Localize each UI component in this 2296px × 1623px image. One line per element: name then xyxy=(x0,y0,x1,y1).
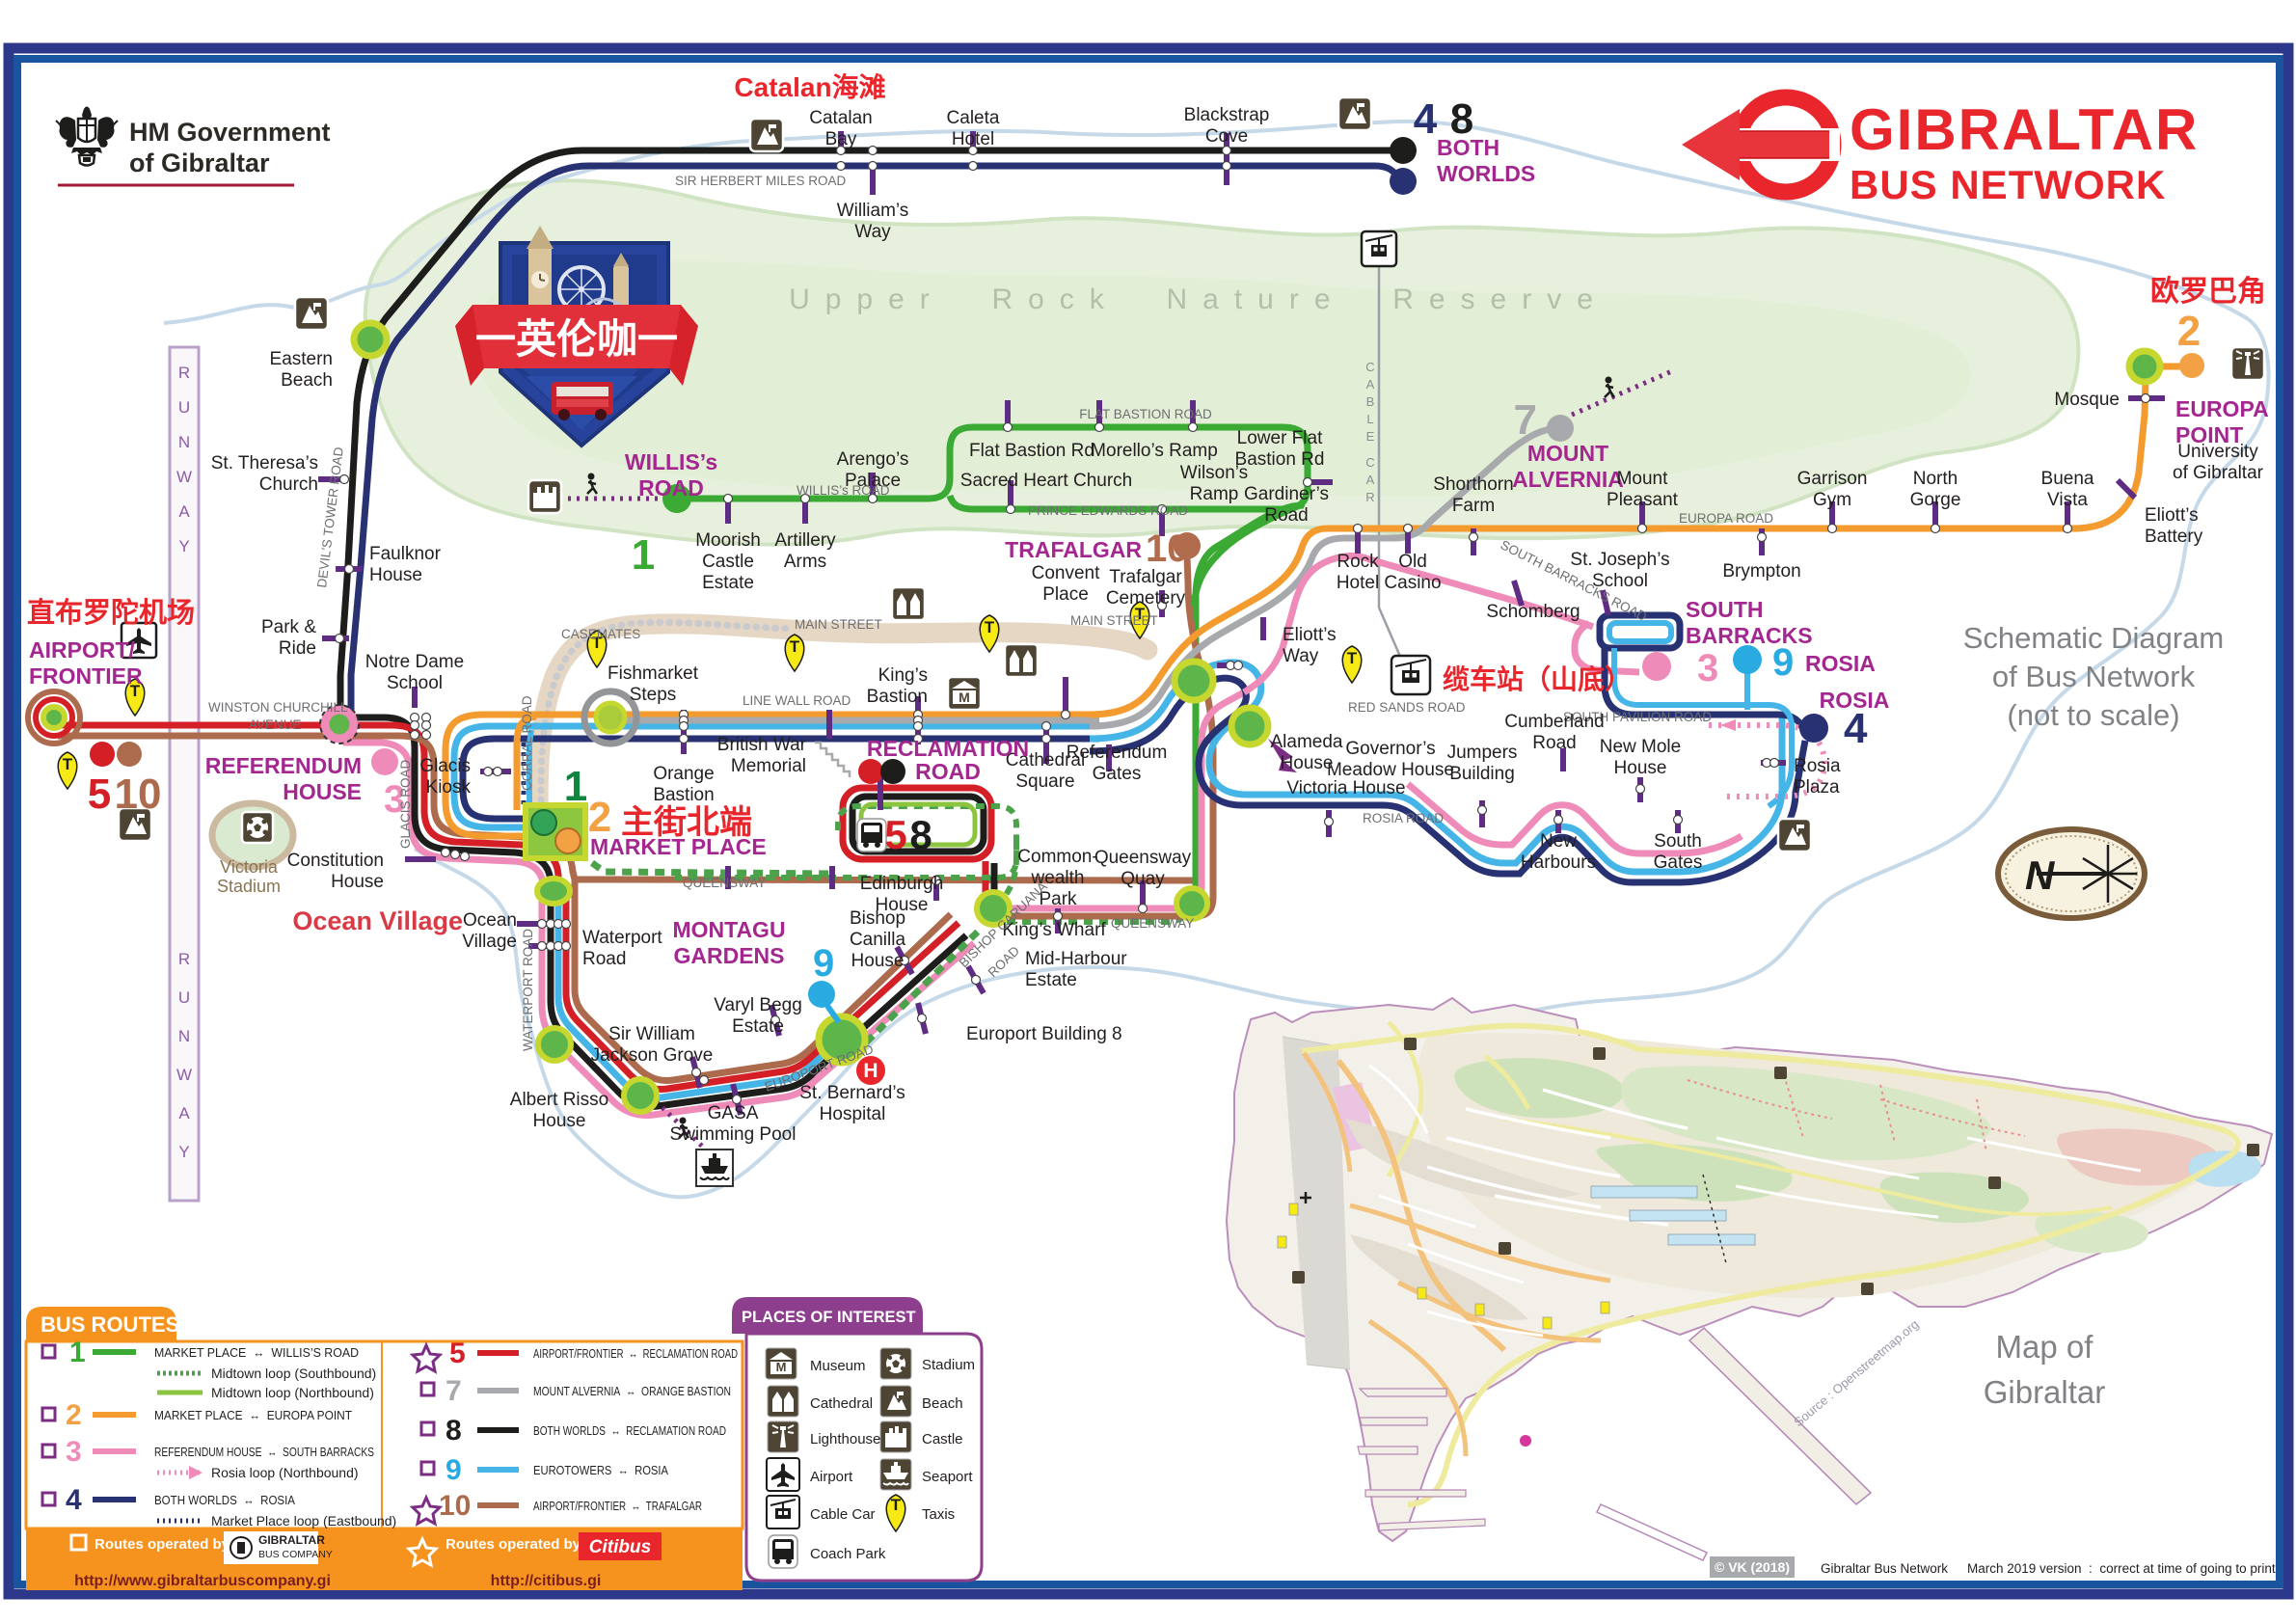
svg-text:Edinburgh: Edinburgh xyxy=(860,874,944,894)
svg-text:L: L xyxy=(1366,412,1373,426)
svg-text:Farm: Farm xyxy=(1452,496,1495,516)
svg-text:Gardiner’s: Gardiner’s xyxy=(1244,484,1329,504)
svg-text:MARKET PLACE: MARKET PLACE xyxy=(590,834,767,859)
svg-text:Shorthorn: Shorthorn xyxy=(1433,474,1513,495)
svg-text:Way: Way xyxy=(854,222,891,242)
svg-text:Routes operated by: Routes operated by xyxy=(446,1536,581,1553)
svg-text:T: T xyxy=(1347,649,1358,667)
svg-text:Square: Square xyxy=(1015,771,1074,792)
svg-text:Mosque: Mosque xyxy=(2054,390,2120,410)
svg-text:3: 3 xyxy=(66,1436,82,1468)
svg-text:Routes operated by: Routes operated by xyxy=(95,1536,230,1553)
svg-text:AIRPORT/FRONTIER ↔ TRAFALGAR: AIRPORT/FRONTIER ↔ TRAFALGAR xyxy=(533,1500,702,1513)
svg-text:University: University xyxy=(2177,442,2258,462)
svg-text:St. Bernard’s: St. Bernard’s xyxy=(799,1083,905,1103)
svg-text:Ocean: Ocean xyxy=(463,910,517,931)
svg-text:Ramp: Ramp xyxy=(1190,484,1239,504)
svg-text:Morello’s Ramp: Morello’s Ramp xyxy=(1091,441,1218,461)
svg-text:HM Government: HM Government xyxy=(129,118,331,147)
svg-text:British War: British War xyxy=(717,735,807,755)
svg-text:Waterport: Waterport xyxy=(582,928,662,948)
svg-text:Ocean Village: Ocean Village xyxy=(292,906,463,935)
svg-text:http://citibus.gi: http://citibus.gi xyxy=(491,1573,602,1589)
svg-text:Catalan: Catalan xyxy=(809,108,873,128)
svg-text:Cove: Cove xyxy=(1205,126,1248,147)
svg-text:T: T xyxy=(63,755,73,773)
svg-text:EUROPA: EUROPA xyxy=(2175,396,2269,421)
svg-text:Memorial: Memorial xyxy=(731,756,806,776)
svg-text:Kiosk: Kiosk xyxy=(426,777,472,798)
svg-text:GLACIS ROAD: GLACIS ROAD xyxy=(398,759,413,849)
svg-text:Buena: Buena xyxy=(2041,469,2094,489)
svg-text:C: C xyxy=(1365,455,1374,470)
svg-text:N: N xyxy=(178,433,190,451)
svg-text:Beach: Beach xyxy=(281,370,333,391)
svg-text:5: 5 xyxy=(449,1338,466,1369)
svg-text:Battery: Battery xyxy=(2145,527,2203,547)
svg-text:R: R xyxy=(178,950,190,968)
svg-text:Stadium: Stadium xyxy=(922,1357,975,1373)
svg-text:St. Theresa’s: St. Theresa’s xyxy=(211,453,318,473)
svg-text:CORRAL ROAD: CORRAL ROAD xyxy=(520,695,534,791)
svg-text:Flat Bastion Rd: Flat Bastion Rd xyxy=(969,441,1094,461)
svg-text:BOTH WORLDS ↔ ROSIA: BOTH WORLDS ↔ ROSIA xyxy=(154,1494,296,1507)
svg-text:Notre Dame: Notre Dame xyxy=(365,652,464,672)
svg-text:T: T xyxy=(891,1496,902,1514)
svg-text:Eastern: Eastern xyxy=(270,349,333,369)
svg-text:Sacred Heart Church: Sacred Heart Church xyxy=(960,471,1132,491)
svg-text:Gibraltar Bus Network: Gibraltar Bus Network xyxy=(1821,1561,1948,1576)
svg-text:House: House xyxy=(331,872,384,892)
svg-text:Estate: Estate xyxy=(702,573,754,593)
svg-text:School: School xyxy=(387,673,443,693)
svg-text:Museum: Museum xyxy=(810,1358,866,1374)
svg-text:Road: Road xyxy=(1532,733,1576,753)
svg-text:Cumberland: Cumberland xyxy=(1504,712,1605,732)
svg-text:Upper Rock Nature Reserve: Upper Rock Nature Reserve xyxy=(789,284,1608,315)
svg-text:Y: Y xyxy=(178,1143,189,1161)
svg-text:BUS ROUTES: BUS ROUTES xyxy=(41,1312,179,1337)
svg-text:Plaza: Plaza xyxy=(1794,777,1840,798)
svg-text:W: W xyxy=(176,468,192,486)
svg-text:Schomberg: Schomberg xyxy=(1486,602,1580,622)
svg-text:Y: Y xyxy=(178,537,189,555)
svg-text:Queensway: Queensway xyxy=(1094,848,1192,868)
svg-text:10: 10 xyxy=(1146,527,1189,570)
svg-text:AIRPORT/FRONTIER ↔ RECLAMATI: AIRPORT/FRONTIER ↔ RECLAMATION ROAD xyxy=(533,1347,738,1361)
svg-text:直布罗陀机场: 直布罗陀机场 xyxy=(27,597,195,629)
svg-text:SIR HERBERT MILES ROAD: SIR HERBERT MILES ROAD xyxy=(675,174,847,188)
svg-text:Estate: Estate xyxy=(1025,970,1077,990)
svg-text:Park &: Park & xyxy=(261,617,316,637)
svg-text:GIBRALTAR: GIBRALTAR xyxy=(1850,97,2199,162)
svg-text:Catalan海滩: Catalan海滩 xyxy=(734,71,885,102)
svg-text:5: 5 xyxy=(884,812,906,857)
svg-text:Victoria House: Victoria House xyxy=(1286,778,1405,798)
svg-text:B: B xyxy=(1366,394,1375,409)
svg-text:Blackstrap: Blackstrap xyxy=(1184,105,1270,125)
svg-text:Vista: Vista xyxy=(2047,490,2088,510)
svg-text:Old: Old xyxy=(1398,552,1427,572)
svg-text:N: N xyxy=(2025,852,2056,898)
svg-text:Hotel: Hotel xyxy=(952,129,994,149)
svg-text:Common-: Common- xyxy=(1017,847,1097,867)
svg-text:Albert Risso: Albert Risso xyxy=(510,1090,608,1110)
svg-text:March 2019 version : correct: March 2019 version : correct at time of … xyxy=(1967,1561,2276,1576)
svg-text:GARDENS: GARDENS xyxy=(673,943,784,968)
svg-text:PLACES OF INTEREST: PLACES OF INTEREST xyxy=(742,1309,916,1326)
svg-text:R: R xyxy=(1365,490,1374,504)
svg-text:9: 9 xyxy=(446,1454,462,1486)
svg-text:Gym: Gym xyxy=(1813,490,1851,510)
svg-text:Building: Building xyxy=(1449,764,1515,784)
svg-text:Alameda: Alameda xyxy=(1271,732,1343,752)
svg-text:Pleasant: Pleasant xyxy=(1607,490,1679,510)
svg-text:EUROTOWERS ↔ ROSIA: EUROTOWERS ↔ ROSIA xyxy=(533,1464,669,1477)
svg-text:QUEENSWAY: QUEENSWAY xyxy=(1111,916,1194,931)
svg-text:MAIN STREET: MAIN STREET xyxy=(1070,613,1158,628)
svg-text:CASEMATES: CASEMATES xyxy=(561,627,640,641)
svg-text:H: H xyxy=(863,1060,878,1082)
svg-text:4: 4 xyxy=(66,1484,82,1516)
svg-text:Governor’s: Governor’s xyxy=(1345,739,1435,759)
svg-text:Bishop: Bishop xyxy=(850,908,905,929)
svg-text:ROSIA ROAD: ROSIA ROAD xyxy=(1363,811,1444,825)
svg-text:Eliott’s: Eliott’s xyxy=(1283,625,1337,645)
svg-text:BOTH WORLDS ↔ RECLAMATION RO: BOTH WORLDS ↔ RECLAMATION ROAD xyxy=(533,1424,726,1438)
svg-text:Rock: Rock xyxy=(1337,552,1379,572)
svg-text:M: M xyxy=(776,1360,787,1374)
svg-text:A: A xyxy=(178,502,190,521)
svg-text:BUS NETWORK: BUS NETWORK xyxy=(1850,162,2166,207)
svg-text:William’s: William’s xyxy=(837,201,909,221)
svg-text:Ride: Ride xyxy=(279,638,316,659)
svg-text:Casino: Casino xyxy=(1384,573,1441,593)
svg-text:T: T xyxy=(985,618,995,636)
svg-text:New Mole: New Mole xyxy=(1600,737,1681,757)
svg-text:(not to scale): (not to scale) xyxy=(2007,698,2179,732)
svg-text:School: School xyxy=(1592,571,1648,591)
svg-text:Harbours: Harbours xyxy=(1521,852,1596,873)
svg-text:Castle: Castle xyxy=(922,1431,963,1447)
svg-text:Faulknor: Faulknor xyxy=(369,544,442,564)
svg-text:AVENUE: AVENUE xyxy=(249,717,302,732)
svg-text:Gates: Gates xyxy=(1654,852,1703,873)
svg-text:U: U xyxy=(178,398,190,417)
svg-text:Lighthouse: Lighthouse xyxy=(810,1431,880,1447)
svg-text:Coach Park: Coach Park xyxy=(810,1546,886,1562)
svg-text:WATERPORT ROAD: WATERPORT ROAD xyxy=(521,929,535,1051)
svg-text:King’s: King’s xyxy=(878,665,928,686)
svg-text:9: 9 xyxy=(1772,641,1794,684)
svg-text:1: 1 xyxy=(632,531,655,579)
svg-text:Gorge: Gorge xyxy=(1910,490,1961,510)
svg-text:Hospital: Hospital xyxy=(820,1104,886,1124)
svg-text:of Bus Network: of Bus Network xyxy=(1992,660,2196,693)
svg-text:Lower Flat: Lower Flat xyxy=(1237,428,1323,448)
svg-text:Airport: Airport xyxy=(810,1469,853,1485)
svg-text:MOUNT: MOUNT xyxy=(1527,441,1608,466)
svg-text:Bay: Bay xyxy=(825,129,857,149)
svg-text:9: 9 xyxy=(813,942,834,985)
svg-text:RED SANDS ROAD: RED SANDS ROAD xyxy=(1348,700,1466,715)
svg-text:Beach: Beach xyxy=(922,1395,963,1412)
svg-text:EUROPA ROAD: EUROPA ROAD xyxy=(1679,511,1773,526)
svg-text:Midtown loop (Southbound): Midtown loop (Southbound) xyxy=(211,1366,376,1381)
svg-text:Arengo’s: Arengo’s xyxy=(837,449,909,470)
svg-text:Cemetery: Cemetery xyxy=(1106,588,1186,609)
svg-text:Cable Car: Cable Car xyxy=(810,1506,876,1523)
svg-text:W: W xyxy=(176,1066,192,1084)
svg-text:of Gibraltar: of Gibraltar xyxy=(2173,463,2264,483)
svg-text:7: 7 xyxy=(446,1375,462,1407)
svg-text:Rosia loop (Northbound): Rosia loop (Northbound) xyxy=(211,1465,359,1480)
svg-text:Europort Building 8: Europort Building 8 xyxy=(966,1024,1122,1044)
svg-text:1: 1 xyxy=(69,1337,86,1368)
svg-text:House: House xyxy=(851,951,905,971)
svg-text:缆车站（山底）: 缆车站（山底） xyxy=(1443,663,1632,694)
svg-text:St. Joseph’s: St. Joseph’s xyxy=(1570,550,1669,570)
svg-text:Garrison: Garrison xyxy=(1797,469,1868,489)
svg-text:House: House xyxy=(1614,758,1667,778)
svg-text:WINSTON CHURCHILL: WINSTON CHURCHILL xyxy=(208,700,348,715)
svg-text:Midtown loop (Northbound): Midtown loop (Northbound) xyxy=(211,1385,374,1400)
svg-text:REFERENDUM: REFERENDUM xyxy=(205,753,362,778)
svg-text:SOUTH: SOUTH xyxy=(1686,597,1764,622)
svg-text:Arms: Arms xyxy=(784,552,826,572)
svg-text:GIBRALTAR: GIBRALTAR xyxy=(258,1533,325,1547)
svg-text:一英伦咖一: 一英伦咖一 xyxy=(475,316,678,362)
svg-text:WORLDS: WORLDS xyxy=(1437,161,1535,186)
svg-text:Seaport: Seaport xyxy=(922,1469,973,1485)
svg-text:Place: Place xyxy=(1042,584,1089,605)
svg-text:4: 4 xyxy=(1414,95,1438,143)
svg-text:WILLIS’s ROAD: WILLIS’s ROAD xyxy=(797,483,890,498)
svg-text:A: A xyxy=(1366,377,1375,392)
svg-text:Glacis: Glacis xyxy=(419,756,471,776)
svg-text:Swimming Pool: Swimming Pool xyxy=(670,1124,797,1145)
svg-text:Gibraltar: Gibraltar xyxy=(1984,1374,2106,1410)
svg-text:MOUNT ALVERNIA ↔ ORANGE BAST: MOUNT ALVERNIA ↔ ORANGE BASTION xyxy=(533,1385,731,1398)
svg-text:New: New xyxy=(1540,831,1577,852)
svg-text:Mid-Harbour: Mid-Harbour xyxy=(1025,949,1127,969)
svg-text:RECLAMATION: RECLAMATION xyxy=(867,736,1029,761)
svg-text:MARKET PLACE ↔ WILLIS’S ROAD: MARKET PLACE ↔ WILLIS’S ROAD xyxy=(154,1346,359,1360)
svg-text:Road: Road xyxy=(1264,505,1308,526)
svg-text:Village: Village xyxy=(462,932,517,952)
svg-text:North: North xyxy=(1913,469,1958,489)
svg-text:BOTH: BOTH xyxy=(1437,135,1499,160)
svg-text:Sir William: Sir William xyxy=(608,1024,695,1044)
svg-text:欧罗巴角: 欧罗巴角 xyxy=(2150,276,2266,308)
svg-text:Referendum: Referendum xyxy=(1067,743,1168,763)
svg-text:HOUSE: HOUSE xyxy=(283,779,362,804)
svg-text:LINE WALL ROAD: LINE WALL ROAD xyxy=(743,693,851,708)
svg-text:FLAT BASTION ROAD: FLAT BASTION ROAD xyxy=(1079,407,1212,421)
svg-text:QUEENSWAY: QUEENSWAY xyxy=(683,876,766,890)
svg-text:N: N xyxy=(178,1027,190,1045)
svg-text:Meadow House: Meadow House xyxy=(1327,760,1454,780)
svg-text:Artillery: Artillery xyxy=(774,530,836,551)
svg-text:TRAFALGAR: TRAFALGAR xyxy=(1005,537,1142,562)
svg-text:House: House xyxy=(369,565,422,585)
svg-text:ROAD: ROAD xyxy=(638,475,704,500)
svg-text:5: 5 xyxy=(88,771,111,818)
svg-text:8: 8 xyxy=(446,1415,462,1447)
svg-text:South: South xyxy=(1654,831,1702,852)
svg-text:Varyl Begg: Varyl Begg xyxy=(714,995,802,1015)
svg-text:Bastion Rd: Bastion Rd xyxy=(1235,449,1325,470)
svg-text:Stadium: Stadium xyxy=(217,877,281,896)
svg-text:2: 2 xyxy=(2177,308,2201,355)
svg-text:of Gibraltar: of Gibraltar xyxy=(129,149,270,177)
svg-text:Road: Road xyxy=(582,949,626,969)
svg-text:MAIN STREET: MAIN STREET xyxy=(795,617,882,632)
svg-text:Market Place loop (Eastbound): Market Place loop (Eastbound) xyxy=(211,1513,396,1528)
svg-text:GASA: GASA xyxy=(708,1103,759,1123)
svg-text:8: 8 xyxy=(909,812,932,857)
svg-text:10: 10 xyxy=(439,1490,471,1522)
svg-text:A: A xyxy=(1366,473,1375,487)
svg-text:Canilla: Canilla xyxy=(850,930,906,950)
svg-text:Bastion: Bastion xyxy=(867,687,928,707)
svg-text:Trafalgar: Trafalgar xyxy=(1109,567,1182,587)
svg-text:1: 1 xyxy=(564,763,587,810)
svg-text:Eliott’s: Eliott’s xyxy=(2145,505,2199,526)
svg-text:Moorish: Moorish xyxy=(695,530,761,551)
svg-text:MONTAGU: MONTAGU xyxy=(672,917,785,942)
svg-text:MARKET PLACE ↔ EUROPA POINT: MARKET PLACE ↔ EUROPA POINT xyxy=(154,1409,352,1422)
svg-text:Hotel: Hotel xyxy=(1337,573,1379,593)
svg-text:King’s Wharf: King’s Wharf xyxy=(1002,920,1106,940)
svg-text:Mount: Mount xyxy=(1617,469,1669,489)
svg-text:Rosia: Rosia xyxy=(1794,756,1841,776)
svg-text:Jumpers: Jumpers xyxy=(1447,743,1518,763)
svg-text:4: 4 xyxy=(1844,705,1868,752)
svg-text:Victoria: Victoria xyxy=(220,857,279,877)
svg-text:Wilson’s: Wilson’s xyxy=(1180,463,1248,483)
svg-text:Map of: Map of xyxy=(1996,1329,2094,1365)
svg-text:BUS COMPANY: BUS COMPANY xyxy=(258,1549,333,1560)
svg-text:R: R xyxy=(178,364,190,382)
svg-text:PRINCE EDWARDS ROAD: PRINCE EDWARDS ROAD xyxy=(1028,503,1188,518)
svg-text:ALVERNIA: ALVERNIA xyxy=(1512,467,1624,492)
svg-text:Constitution: Constitution xyxy=(287,851,384,871)
svg-text:Church: Church xyxy=(259,474,318,495)
svg-text:E: E xyxy=(1366,429,1375,444)
svg-text:M: M xyxy=(959,690,970,705)
svg-text:Schematic Diagram: Schematic Diagram xyxy=(1963,621,2224,655)
svg-text:WILLIS’s: WILLIS’s xyxy=(625,449,717,474)
svg-text:C: C xyxy=(1365,360,1374,374)
svg-text:Convent: Convent xyxy=(1032,563,1100,583)
svg-text:U: U xyxy=(178,988,190,1007)
svg-text:Citibus: Citibus xyxy=(589,1537,651,1557)
svg-text:AIRPORT/: AIRPORT/ xyxy=(29,637,136,663)
svg-text:Steps: Steps xyxy=(630,685,677,705)
svg-text:© VK (2018): © VK (2018) xyxy=(1715,1559,1790,1575)
svg-text:10: 10 xyxy=(115,771,162,818)
svg-text:Cathedral: Cathedral xyxy=(810,1395,873,1412)
svg-text:FRONTIER: FRONTIER xyxy=(29,663,143,689)
svg-text:http://www.gibraltarbuscompany: http://www.gibraltarbuscompany.gi xyxy=(74,1573,331,1589)
svg-text:Caleta: Caleta xyxy=(947,108,1000,128)
svg-text:ROSIA: ROSIA xyxy=(1805,651,1876,676)
svg-text:Way: Way xyxy=(1283,646,1319,666)
svg-text:REFERENDUM HOUSE ↔ SOUTH BAR: REFERENDUM HOUSE ↔ SOUTH BARRACKS xyxy=(154,1446,374,1459)
svg-text:Estate: Estate xyxy=(732,1016,784,1037)
svg-text:ROAD: ROAD xyxy=(915,759,981,784)
svg-text:A: A xyxy=(178,1104,190,1123)
svg-text:Taxis: Taxis xyxy=(922,1506,955,1523)
svg-text:3: 3 xyxy=(1697,647,1718,690)
svg-text:Bastion: Bastion xyxy=(653,785,714,805)
svg-text:Fishmarket: Fishmarket xyxy=(608,663,699,684)
svg-text:Brympton: Brympton xyxy=(1722,561,1800,582)
svg-text:House: House xyxy=(533,1111,586,1131)
svg-text:Gates: Gates xyxy=(1093,764,1142,784)
svg-text:Orange: Orange xyxy=(653,764,714,784)
svg-text:Castle: Castle xyxy=(702,552,754,572)
svg-text:2: 2 xyxy=(66,1399,82,1431)
svg-text:T: T xyxy=(790,637,800,656)
svg-text:House: House xyxy=(1281,753,1334,773)
svg-text:Quay: Quay xyxy=(1121,869,1165,889)
svg-text:Jackson Grove: Jackson Grove xyxy=(591,1045,714,1066)
svg-text:7: 7 xyxy=(1514,396,1537,444)
